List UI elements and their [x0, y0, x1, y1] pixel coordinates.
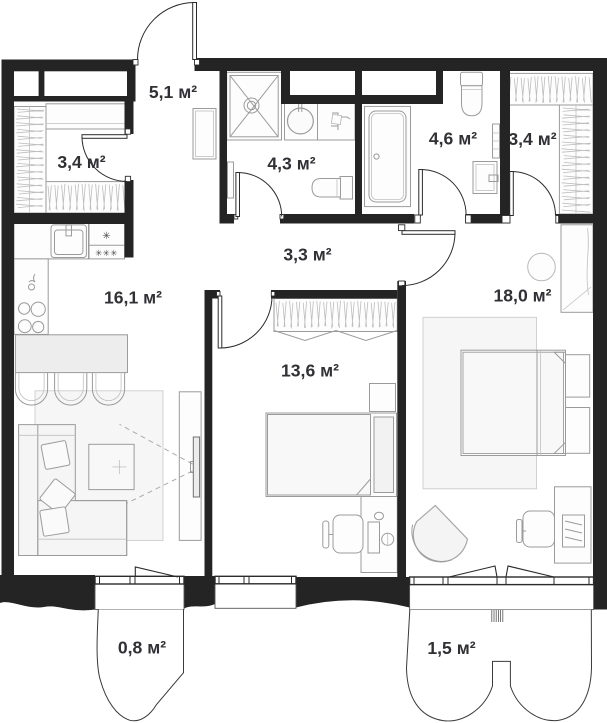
- svg-text:3,4 м²: 3,4 м²: [508, 129, 556, 149]
- svg-text:16,1 м²: 16,1 м²: [104, 288, 162, 308]
- svg-text:3,3 м²: 3,3 м²: [283, 245, 331, 265]
- svg-text:4,3 м²: 4,3 м²: [267, 154, 315, 174]
- svg-text:5,1 м²: 5,1 м²: [149, 82, 197, 102]
- svg-text:✳: ✳: [102, 231, 110, 242]
- svg-text:0,8 м²: 0,8 м²: [118, 638, 166, 658]
- svg-text:4,6 м²: 4,6 м²: [429, 129, 477, 149]
- svg-text:1,5 м²: 1,5 м²: [427, 638, 475, 658]
- svg-text:18,0 м²: 18,0 м²: [493, 286, 551, 306]
- svg-text:13,6 м²: 13,6 м²: [281, 361, 339, 381]
- svg-text:✳✳✳: ✳✳✳: [95, 248, 118, 258]
- svg-text:3,4 м²: 3,4 м²: [57, 152, 105, 172]
